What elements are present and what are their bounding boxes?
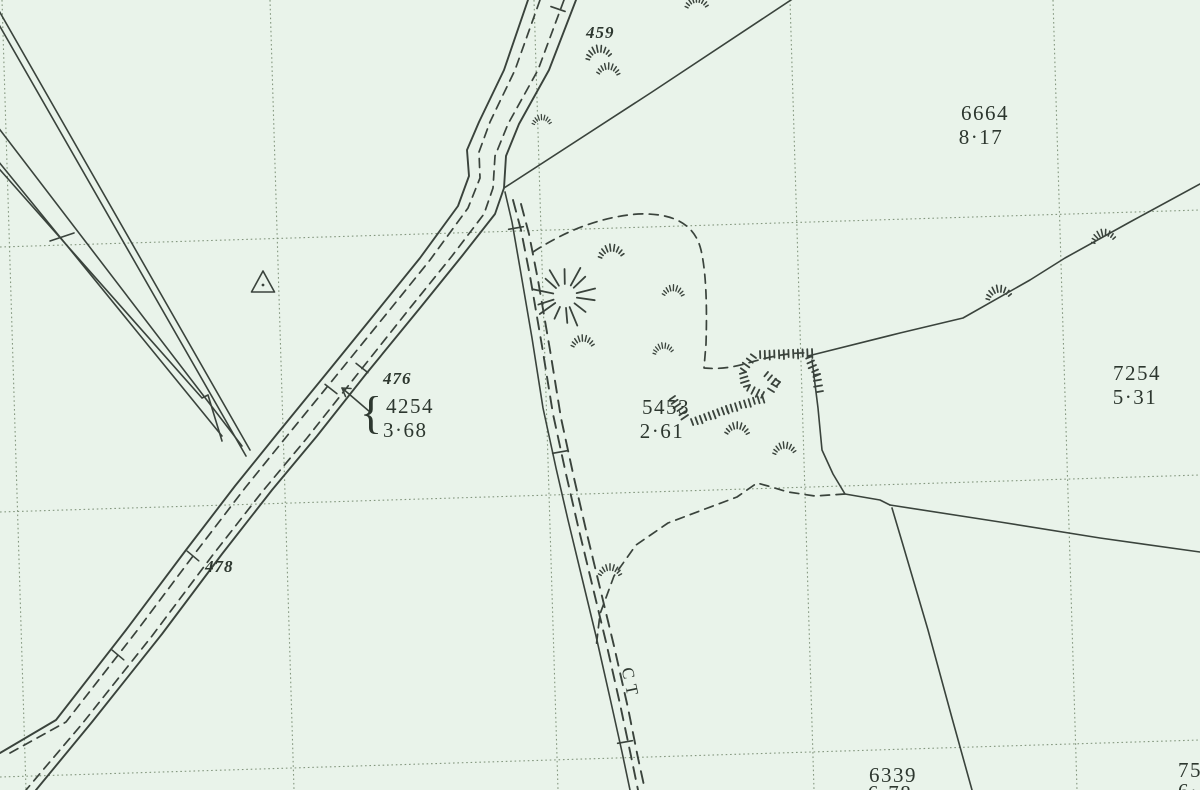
- parcel-area: 3·68: [383, 418, 428, 442]
- parcel-area: 6·78: [868, 781, 913, 790]
- left-track-line: [0, 2, 250, 450]
- boundary-mereing-label: CT: [618, 666, 644, 703]
- parcel-area-clipped: 6·: [1178, 779, 1199, 790]
- grass-tuft-icon: [598, 243, 624, 258]
- map-viewport: 6664 8·17 7254 5·31 5453 2·61 { 4254 3·6…: [0, 0, 1200, 790]
- grass-tuft-icon: [597, 62, 621, 76]
- grass-tuft-icon: [532, 115, 551, 125]
- boundary-bottom-right: [892, 508, 972, 790]
- parcel-number: 7254: [1113, 361, 1161, 385]
- road-casing-nw: [0, 0, 528, 753]
- road-number: 476: [382, 369, 412, 388]
- parcel-number: 6664: [961, 101, 1009, 125]
- track-ct: [505, 192, 645, 790]
- left-track-lines: [0, 2, 250, 456]
- grass-tuft-icon: [725, 421, 750, 435]
- road-inner-dash-nw: [10, 0, 540, 753]
- left-track-line: [0, 122, 242, 446]
- brace-symbol: {: [360, 387, 382, 438]
- parcel-number: 5453: [642, 395, 690, 419]
- field-boundaries: [504, 0, 1200, 790]
- map-labels: 6664 8·17 7254 5·31 5453 2·61 { 4254 3·6…: [204, 23, 1200, 790]
- gate-tick-marks: [112, 7, 632, 744]
- road-inner-dash-se: [26, 0, 564, 790]
- grass-tuft-icon: [652, 342, 673, 355]
- slope-hatching: [670, 349, 823, 425]
- parcel-area: 5·31: [1113, 385, 1158, 409]
- rough-grass-tufts: [532, 0, 1116, 576]
- grass-tuft-icon: [571, 335, 594, 347]
- road-main: [0, 0, 576, 790]
- grass-tuft-icon: [584, 43, 611, 60]
- boundary-right-lower: [890, 505, 1200, 552]
- road-casing-se: [36, 0, 576, 790]
- track-dashed-line: [513, 200, 638, 790]
- triangle-station-icon: [252, 271, 275, 292]
- vegetation-limit-dashed-lower: [596, 483, 845, 648]
- boundary-slope-edge: [812, 360, 890, 505]
- boundary-right-upper: [808, 184, 1200, 356]
- boundary-ne: [504, 0, 800, 188]
- left-track-line: [0, 16, 246, 456]
- road-number: 478: [204, 557, 234, 576]
- grid-lines: [0, 0, 1200, 790]
- map-canvas: 6664 8·17 7254 5·31 5453 2·61 { 4254 3·6…: [0, 0, 1200, 790]
- track-fence-line: [505, 192, 630, 790]
- grass-tuft-icon: [685, 0, 708, 8]
- sunburst-icon: [533, 268, 595, 326]
- parcel-number: 4254: [386, 394, 434, 418]
- parcel-area: 2·61: [640, 419, 685, 443]
- road-number: 459: [585, 23, 615, 42]
- grass-tuft-icon: [772, 441, 796, 454]
- parcel-area: 8·17: [959, 125, 1004, 149]
- grass-tuft-icon: [662, 284, 685, 297]
